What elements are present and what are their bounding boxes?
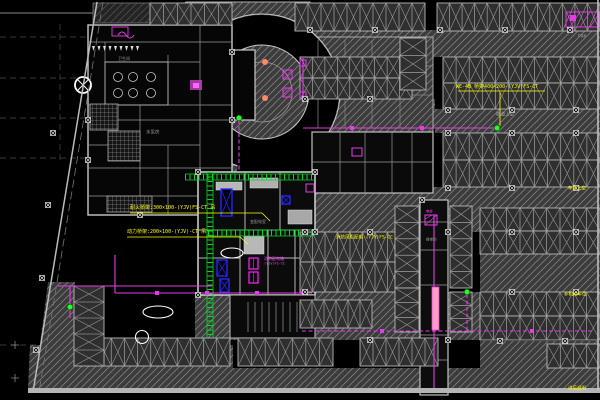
parking-stall-row xyxy=(300,57,412,78)
parking-stall-column xyxy=(395,206,419,288)
parking-stall-row xyxy=(300,78,412,99)
parking-stall-row xyxy=(300,232,400,262)
column-marker-icon xyxy=(510,186,515,191)
column-marker-icon xyxy=(446,108,451,113)
green-node-icon xyxy=(236,115,242,121)
column-marker-icon xyxy=(373,28,378,33)
green-node-icon xyxy=(494,125,500,131)
parking-stall-column xyxy=(400,38,426,90)
column-marker-icon xyxy=(568,28,573,33)
parking-stall-row xyxy=(443,160,600,187)
column-marker-icon xyxy=(446,338,451,343)
column-marker-icon xyxy=(34,348,39,353)
column-marker-icon xyxy=(230,50,235,55)
column-marker-icon xyxy=(196,293,201,298)
column-marker-icon xyxy=(446,131,451,136)
column-marker-icon xyxy=(51,131,56,136)
fixture-circle-icon xyxy=(147,73,156,82)
column-marker-icon xyxy=(510,230,515,235)
column-marker-icon xyxy=(420,198,425,203)
column-marker-icon xyxy=(303,97,308,102)
column-marker-icon xyxy=(503,28,508,33)
parking-stall-row xyxy=(480,292,600,316)
column-marker-icon xyxy=(574,131,579,136)
parking-stall-row xyxy=(443,83,600,109)
fixture-circle-icon xyxy=(114,89,123,98)
ramp-side-rooms xyxy=(312,132,433,193)
parking-stall-row xyxy=(295,3,425,31)
column-marker-icon xyxy=(510,108,515,113)
parking-stall-row xyxy=(300,300,372,328)
column-marker-icon xyxy=(510,131,515,136)
column-marker-icon xyxy=(446,230,451,235)
orange-dot-icon xyxy=(262,95,268,101)
parking-stall-column xyxy=(450,206,472,288)
parking-stall-column xyxy=(450,292,472,332)
column-marker-icon xyxy=(438,28,443,33)
column-marker-icon xyxy=(563,339,568,344)
parking-stall-row xyxy=(300,262,400,292)
column-marker-icon xyxy=(446,186,451,191)
column-marker-icon xyxy=(230,118,235,123)
column-marker-icon xyxy=(368,230,373,235)
parking-stall-row xyxy=(547,344,600,368)
cad-geometry xyxy=(0,0,600,400)
column-marker-icon xyxy=(313,230,318,235)
column-marker-icon xyxy=(40,276,45,281)
column-marker-icon xyxy=(498,339,503,344)
column-marker-icon xyxy=(303,230,308,235)
parking-stall-row xyxy=(443,133,600,160)
fixture-circle-icon xyxy=(114,73,123,82)
green-node-icon xyxy=(464,289,470,295)
column-marker-icon xyxy=(574,230,579,235)
green-node-icon xyxy=(67,304,73,310)
orange-dot-icon xyxy=(262,59,268,65)
column-marker-icon xyxy=(574,290,579,295)
parking-stall-row xyxy=(98,338,230,366)
parking-stall-row xyxy=(443,57,600,83)
fixture-circle-icon xyxy=(129,73,138,82)
perimeter-wall xyxy=(28,388,600,393)
column-marker-icon xyxy=(368,97,373,102)
cad-drawing-viewport[interactable]: WE-4B 桥架400×200-(YJV)FS-CT坡道上空耐火桥架:300×1… xyxy=(0,0,600,400)
column-marker-icon xyxy=(303,290,308,295)
column-marker-icon xyxy=(313,170,318,175)
parking-stall-column xyxy=(74,286,104,366)
fixture-circle-icon xyxy=(129,89,138,98)
column-marker-icon xyxy=(308,28,313,33)
column-marker-icon xyxy=(86,118,91,123)
parking-stall-column xyxy=(395,288,419,332)
column-marker-icon xyxy=(196,170,201,175)
column-marker-icon xyxy=(368,338,373,343)
column-marker-icon xyxy=(510,290,515,295)
column-marker-icon xyxy=(46,203,51,208)
parking-stall-row xyxy=(480,208,600,231)
parking-stall-row xyxy=(150,3,232,25)
parking-stall-row xyxy=(238,338,333,366)
column-marker-icon xyxy=(574,108,579,113)
fixture-circle-icon xyxy=(147,89,156,98)
column-marker-icon xyxy=(86,158,91,163)
column-marker-icon xyxy=(574,186,579,191)
parking-stall-row xyxy=(480,231,600,254)
parking-stall-row xyxy=(480,316,600,340)
